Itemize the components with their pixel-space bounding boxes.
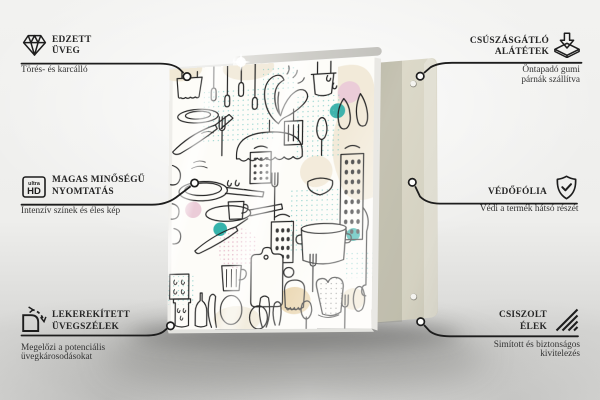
svg-text:HD: HD <box>27 186 41 197</box>
